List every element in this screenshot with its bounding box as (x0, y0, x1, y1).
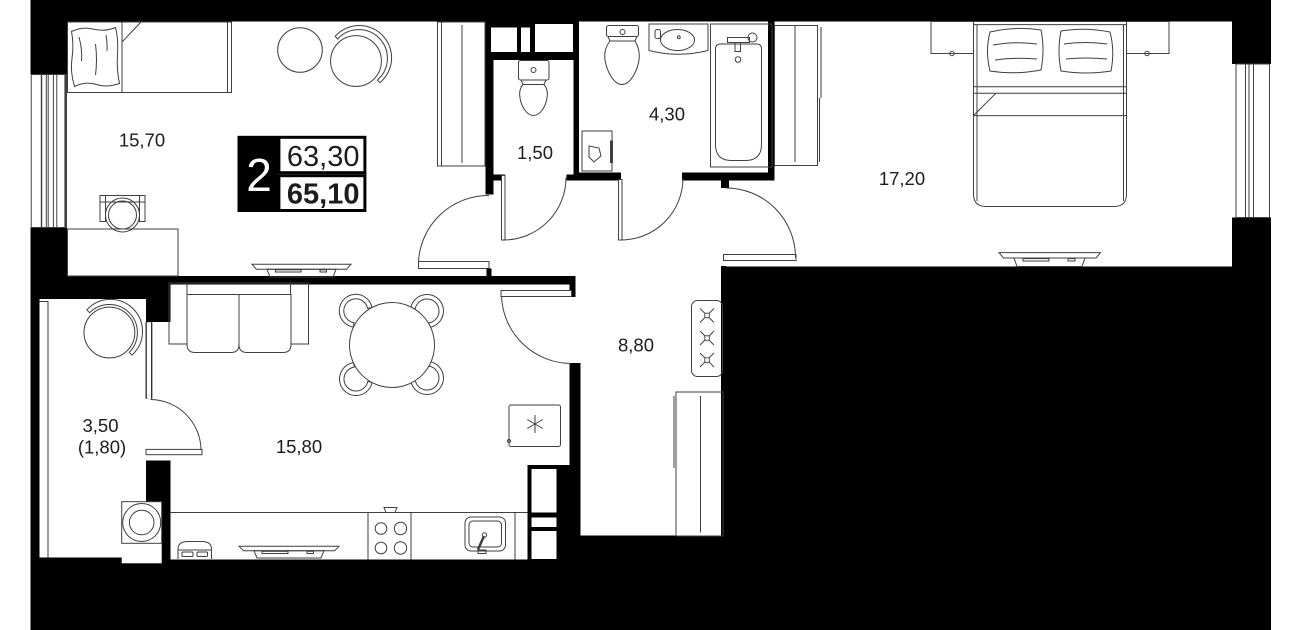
svg-text:1,50: 1,50 (517, 142, 553, 163)
svg-text:63,30: 63,30 (287, 141, 360, 173)
svg-text:2: 2 (246, 149, 272, 201)
svg-text:15,70: 15,70 (119, 130, 165, 151)
svg-text:65,10: 65,10 (287, 179, 360, 211)
svg-text:8,80: 8,80 (618, 335, 654, 356)
svg-text:15,80: 15,80 (276, 436, 322, 457)
svg-text:3,50: 3,50 (82, 415, 118, 436)
svg-text:4,30: 4,30 (649, 104, 685, 125)
svg-text:17,20: 17,20 (879, 168, 925, 189)
svg-text:(1,80): (1,80) (78, 437, 126, 458)
